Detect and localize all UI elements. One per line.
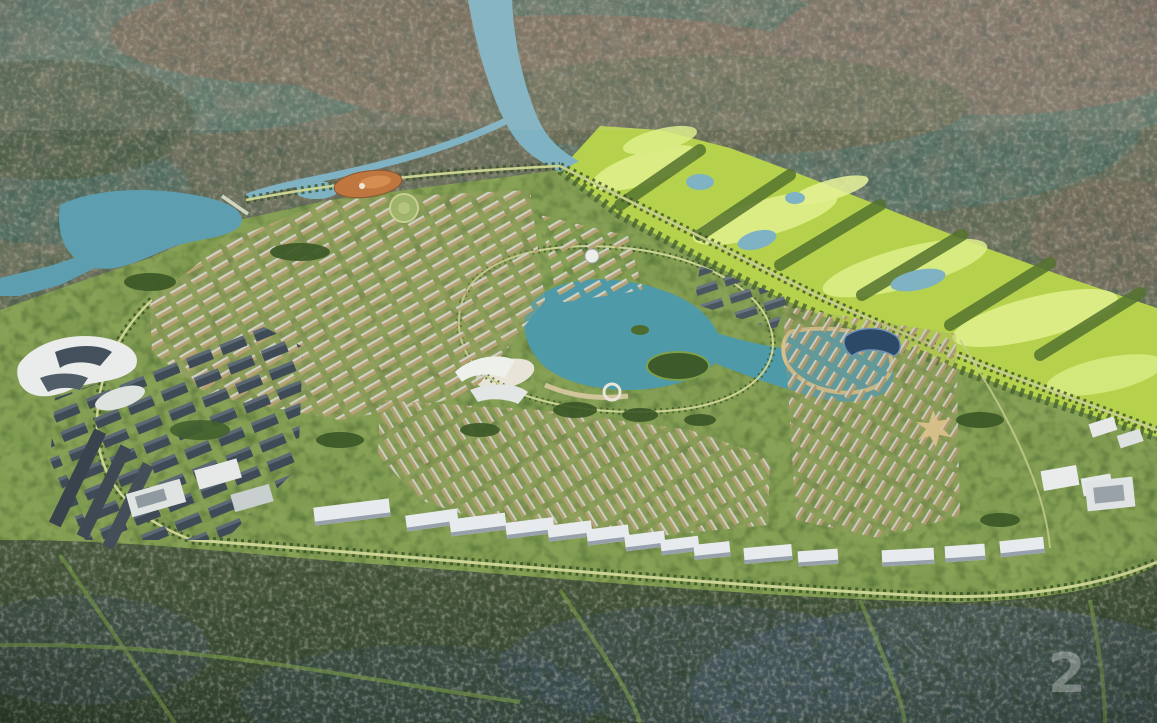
watermark-glyph: 2	[1048, 642, 1086, 705]
vignette	[0, 0, 1157, 723]
aerial-masterplan-render: 2	[0, 0, 1157, 723]
